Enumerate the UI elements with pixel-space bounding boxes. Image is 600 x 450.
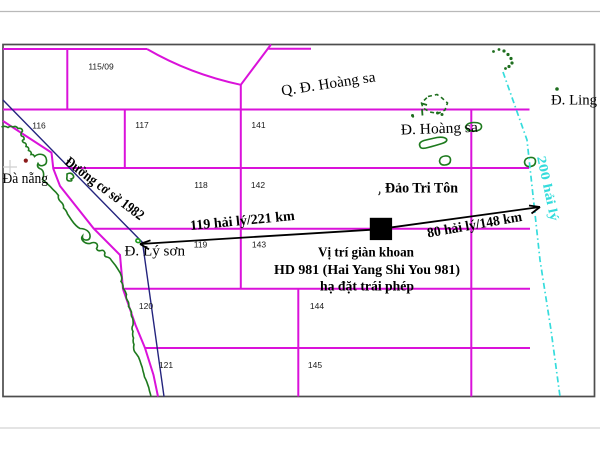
svg-text:HD 981 (Hai Yang Shi You 981): HD 981 (Hai Yang Shi You 981) bbox=[274, 263, 460, 278]
svg-text:Đảo Tri Tôn: Đảo Tri Tôn bbox=[385, 181, 458, 197]
svg-text:hạ đặt trái phép: hạ đặt trái phép bbox=[320, 280, 414, 295]
svg-text:145: 145 bbox=[308, 360, 322, 370]
svg-text:116: 116 bbox=[32, 121, 46, 131]
svg-text:144: 144 bbox=[310, 301, 324, 311]
svg-text:Đ. Lý sơn: Đ. Lý sơn bbox=[125, 244, 186, 260]
svg-text:120: 120 bbox=[139, 301, 153, 311]
svg-text:115/09: 115/09 bbox=[88, 62, 114, 72]
svg-text:Đ. Ling: Đ. Ling bbox=[551, 93, 597, 109]
svg-text:Đ. Hoàng sa: Đ. Hoàng sa bbox=[401, 120, 479, 139]
svg-text:119: 119 bbox=[194, 240, 208, 250]
svg-text:141: 141 bbox=[251, 120, 265, 130]
svg-text:118: 118 bbox=[194, 180, 208, 190]
svg-text:142: 142 bbox=[251, 180, 265, 190]
svg-text:143: 143 bbox=[252, 240, 266, 250]
svg-text:121: 121 bbox=[159, 360, 173, 370]
svg-text:Vị trí giàn khoan: Vị trí giàn khoan bbox=[318, 246, 414, 261]
svg-text:117: 117 bbox=[135, 120, 149, 130]
svg-text:Đà nẵng: Đà nẵng bbox=[3, 171, 49, 187]
